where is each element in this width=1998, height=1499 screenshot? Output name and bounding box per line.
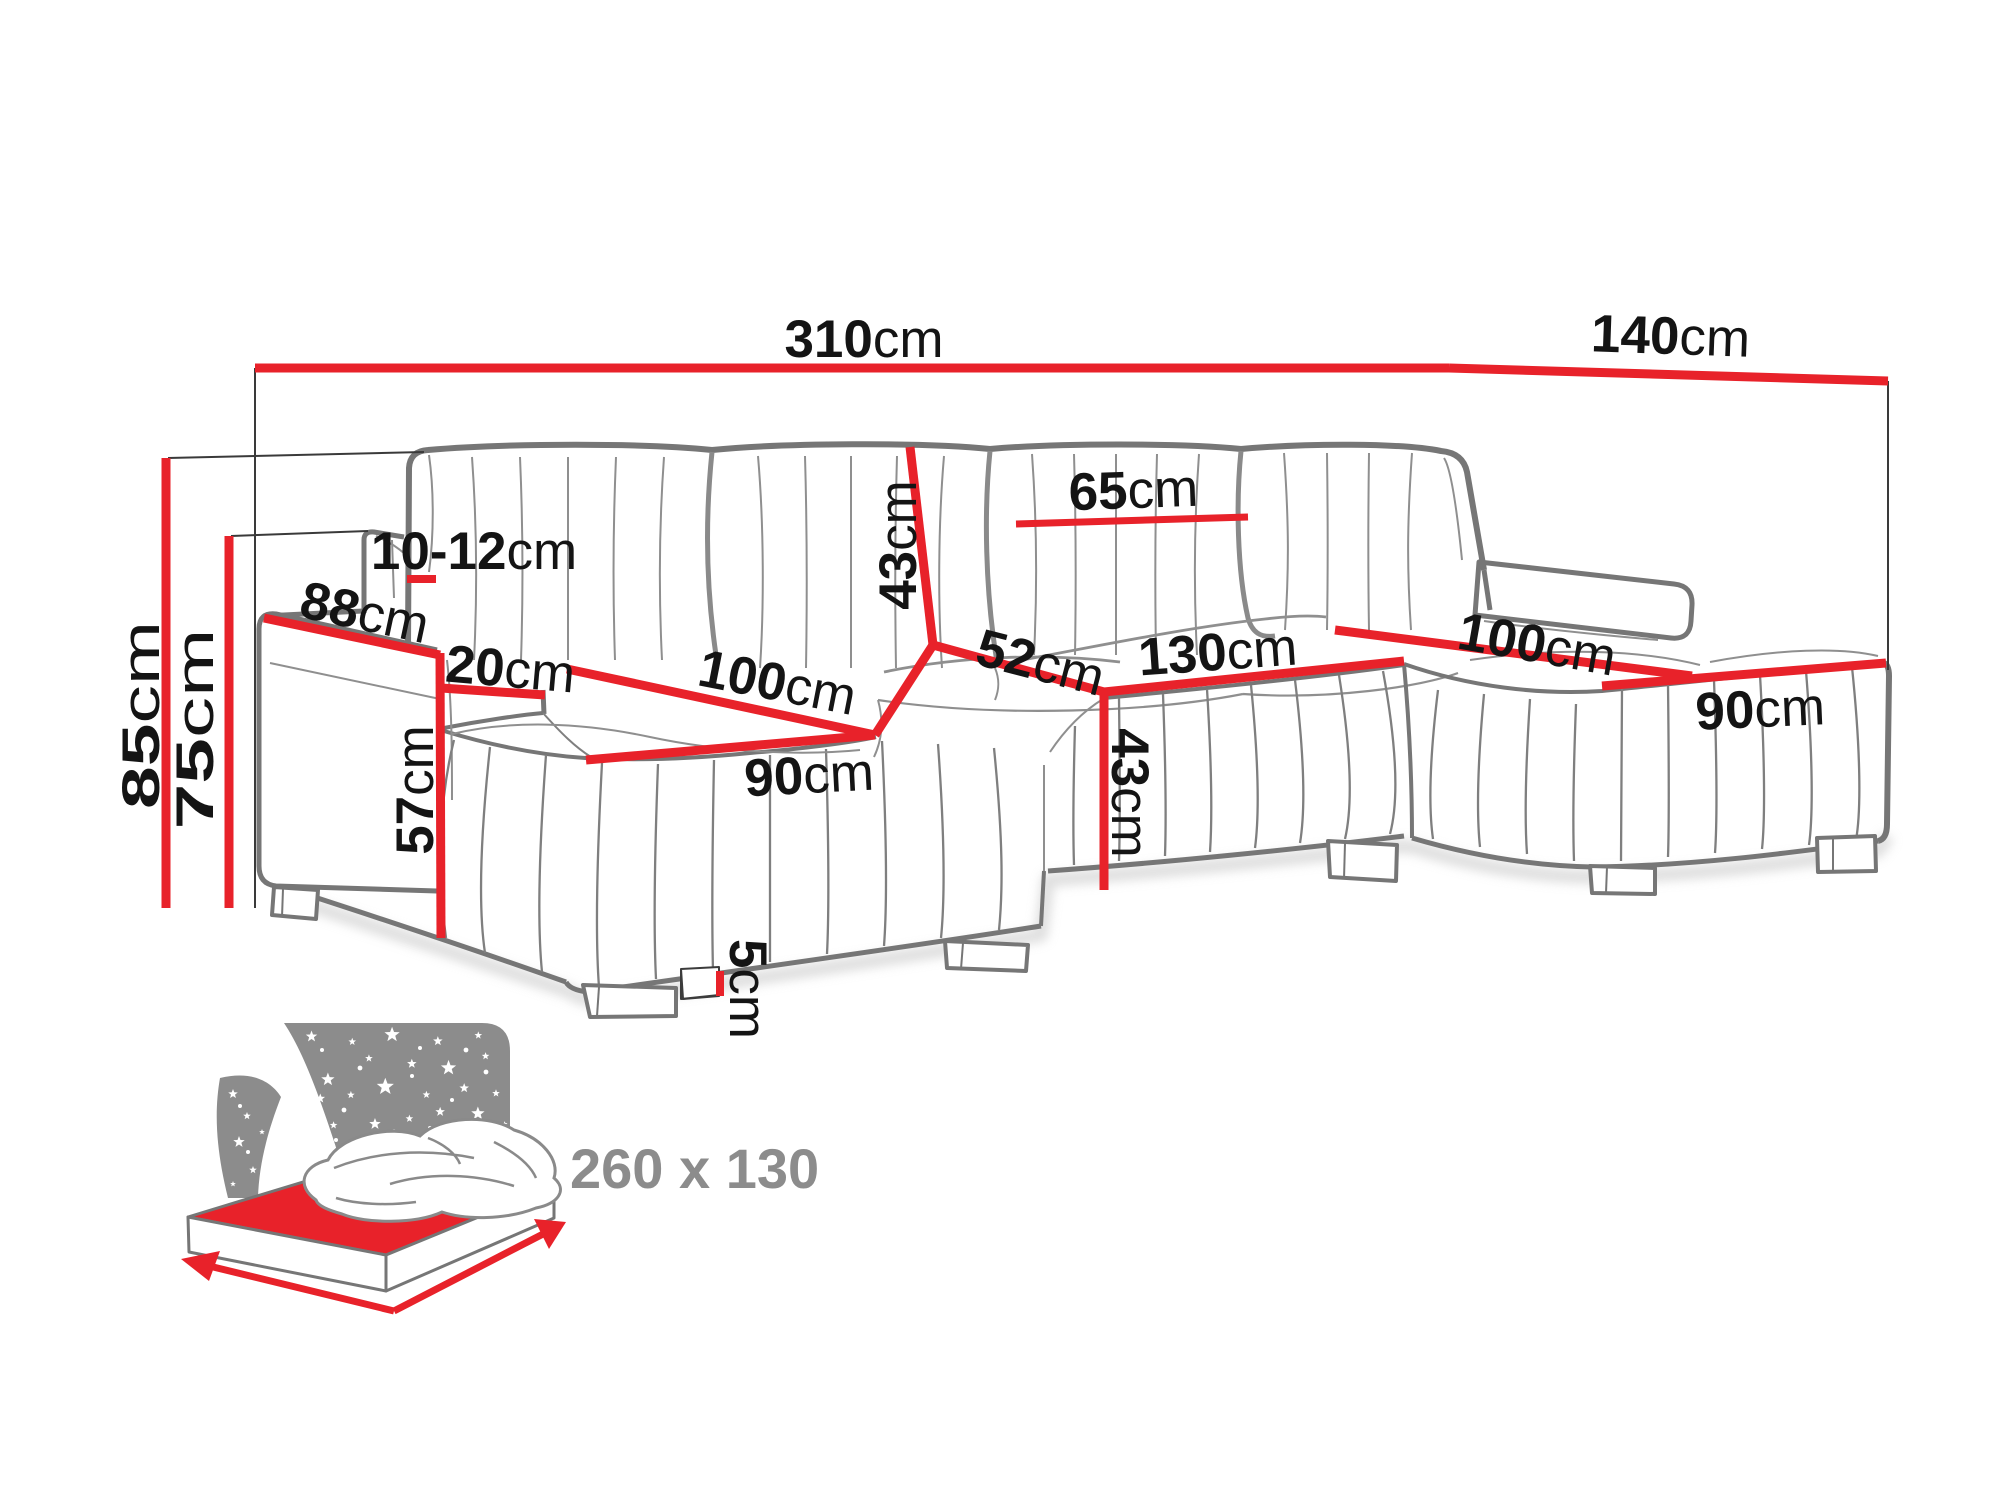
svg-text:43cm: 43cm <box>869 480 928 610</box>
svg-text:85cm: 85cm <box>111 621 170 809</box>
svg-text:5cm: 5cm <box>718 939 777 1039</box>
svg-text:90cm: 90cm <box>1694 677 1826 742</box>
svg-text:20cm: 20cm <box>443 635 577 705</box>
svg-text:43cm: 43cm <box>1100 728 1159 858</box>
svg-text:75cm: 75cm <box>165 629 225 830</box>
svg-text:90cm: 90cm <box>743 743 876 809</box>
svg-text:260 x 130: 260 x 130 <box>570 1137 819 1200</box>
svg-text:130cm: 130cm <box>1136 618 1299 688</box>
svg-text:57cm: 57cm <box>386 725 445 855</box>
svg-text:65cm: 65cm <box>1068 459 1200 522</box>
svg-text:310cm: 310cm <box>784 310 943 369</box>
svg-text:10-12cm: 10-12cm <box>371 522 577 581</box>
svg-text:140cm: 140cm <box>1590 304 1751 369</box>
